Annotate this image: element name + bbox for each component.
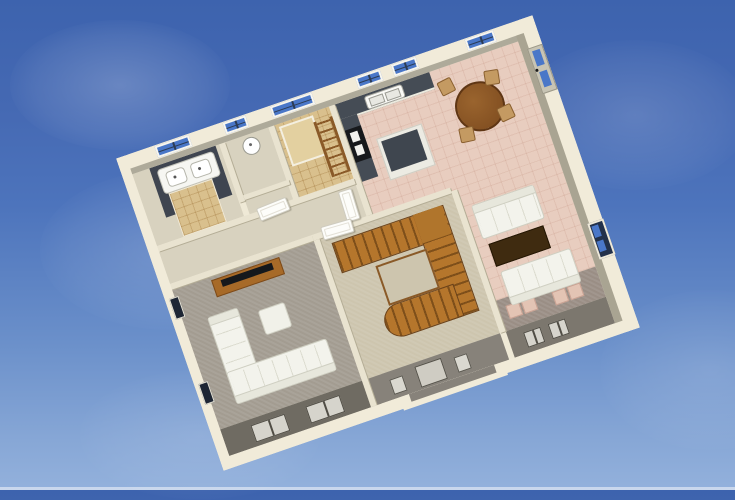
oven-door <box>350 131 361 143</box>
chair-icon <box>458 126 476 144</box>
sidelight-icon <box>453 353 471 373</box>
window-icon <box>523 327 545 348</box>
glass-pane <box>539 70 552 88</box>
glass-pane <box>591 224 602 238</box>
island-top <box>381 129 427 172</box>
glass-pane <box>532 49 545 67</box>
oven-door <box>354 144 365 156</box>
chair-icon <box>483 69 500 86</box>
house-render <box>116 15 639 470</box>
window-icon <box>548 318 570 339</box>
sink-basin <box>368 93 385 106</box>
kitchen-island <box>376 123 436 180</box>
glass-pane <box>597 240 607 253</box>
chair-icon <box>436 77 456 97</box>
sink-basin <box>384 88 401 101</box>
sidelight-icon <box>389 375 407 395</box>
floorplan-viewport[interactable] <box>0 0 735 490</box>
ottoman <box>258 302 293 336</box>
